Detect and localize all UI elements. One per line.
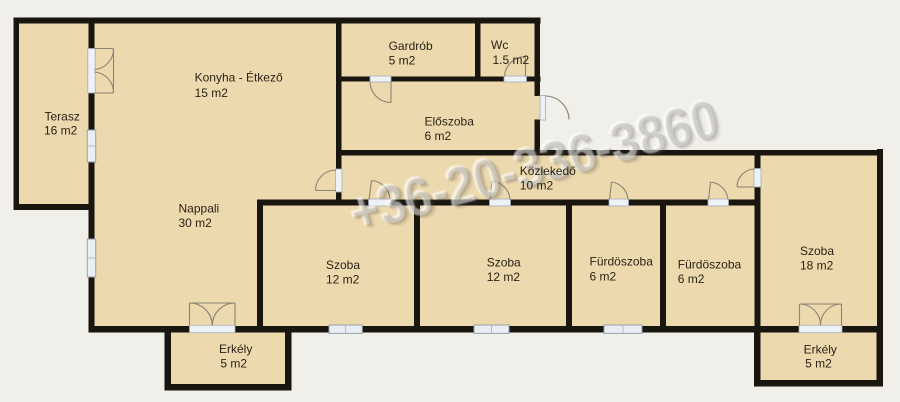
svg-text:6 m2: 6 m2: [678, 272, 705, 286]
svg-text:Wc: Wc: [491, 38, 508, 52]
svg-text:5 m2: 5 m2: [220, 357, 247, 371]
svg-text:5 m2: 5 m2: [389, 53, 416, 67]
svg-text:6 m2: 6 m2: [425, 129, 452, 143]
svg-text:Fürdöszoba: Fürdöszoba: [678, 258, 742, 272]
svg-text:12 m2: 12 m2: [326, 272, 360, 286]
svg-text:30 m2: 30 m2: [179, 216, 213, 230]
svg-text:5 m2: 5 m2: [805, 357, 832, 371]
svg-text:Konyha - Étkező: Konyha - Étkező: [195, 70, 283, 85]
svg-text:1.5 m2: 1.5 m2: [493, 53, 530, 67]
svg-text:6 m2: 6 m2: [590, 269, 617, 283]
svg-text:12 m2: 12 m2: [487, 270, 521, 284]
svg-text:Szoba: Szoba: [326, 258, 360, 272]
svg-text:Fürdöszoba: Fürdöszoba: [590, 255, 654, 269]
svg-text:Szoba: Szoba: [800, 244, 834, 258]
svg-text:Gardrób: Gardrób: [389, 39, 433, 53]
svg-text:Erkély: Erkély: [804, 342, 837, 356]
svg-text:Nappali: Nappali: [179, 202, 220, 216]
svg-text:Előszoba: Előszoba: [425, 114, 475, 128]
svg-text:15 m2: 15 m2: [195, 86, 229, 100]
svg-text:Közlekedő: Közlekedő: [520, 164, 576, 178]
svg-text:18 m2: 18 m2: [800, 258, 834, 272]
svg-text:16 m2: 16 m2: [44, 124, 78, 138]
svg-text:Terasz: Terasz: [45, 110, 80, 124]
svg-text:Szoba: Szoba: [487, 256, 521, 270]
svg-text:10 m2: 10 m2: [520, 179, 554, 193]
svg-text:Erkély: Erkély: [219, 342, 252, 356]
